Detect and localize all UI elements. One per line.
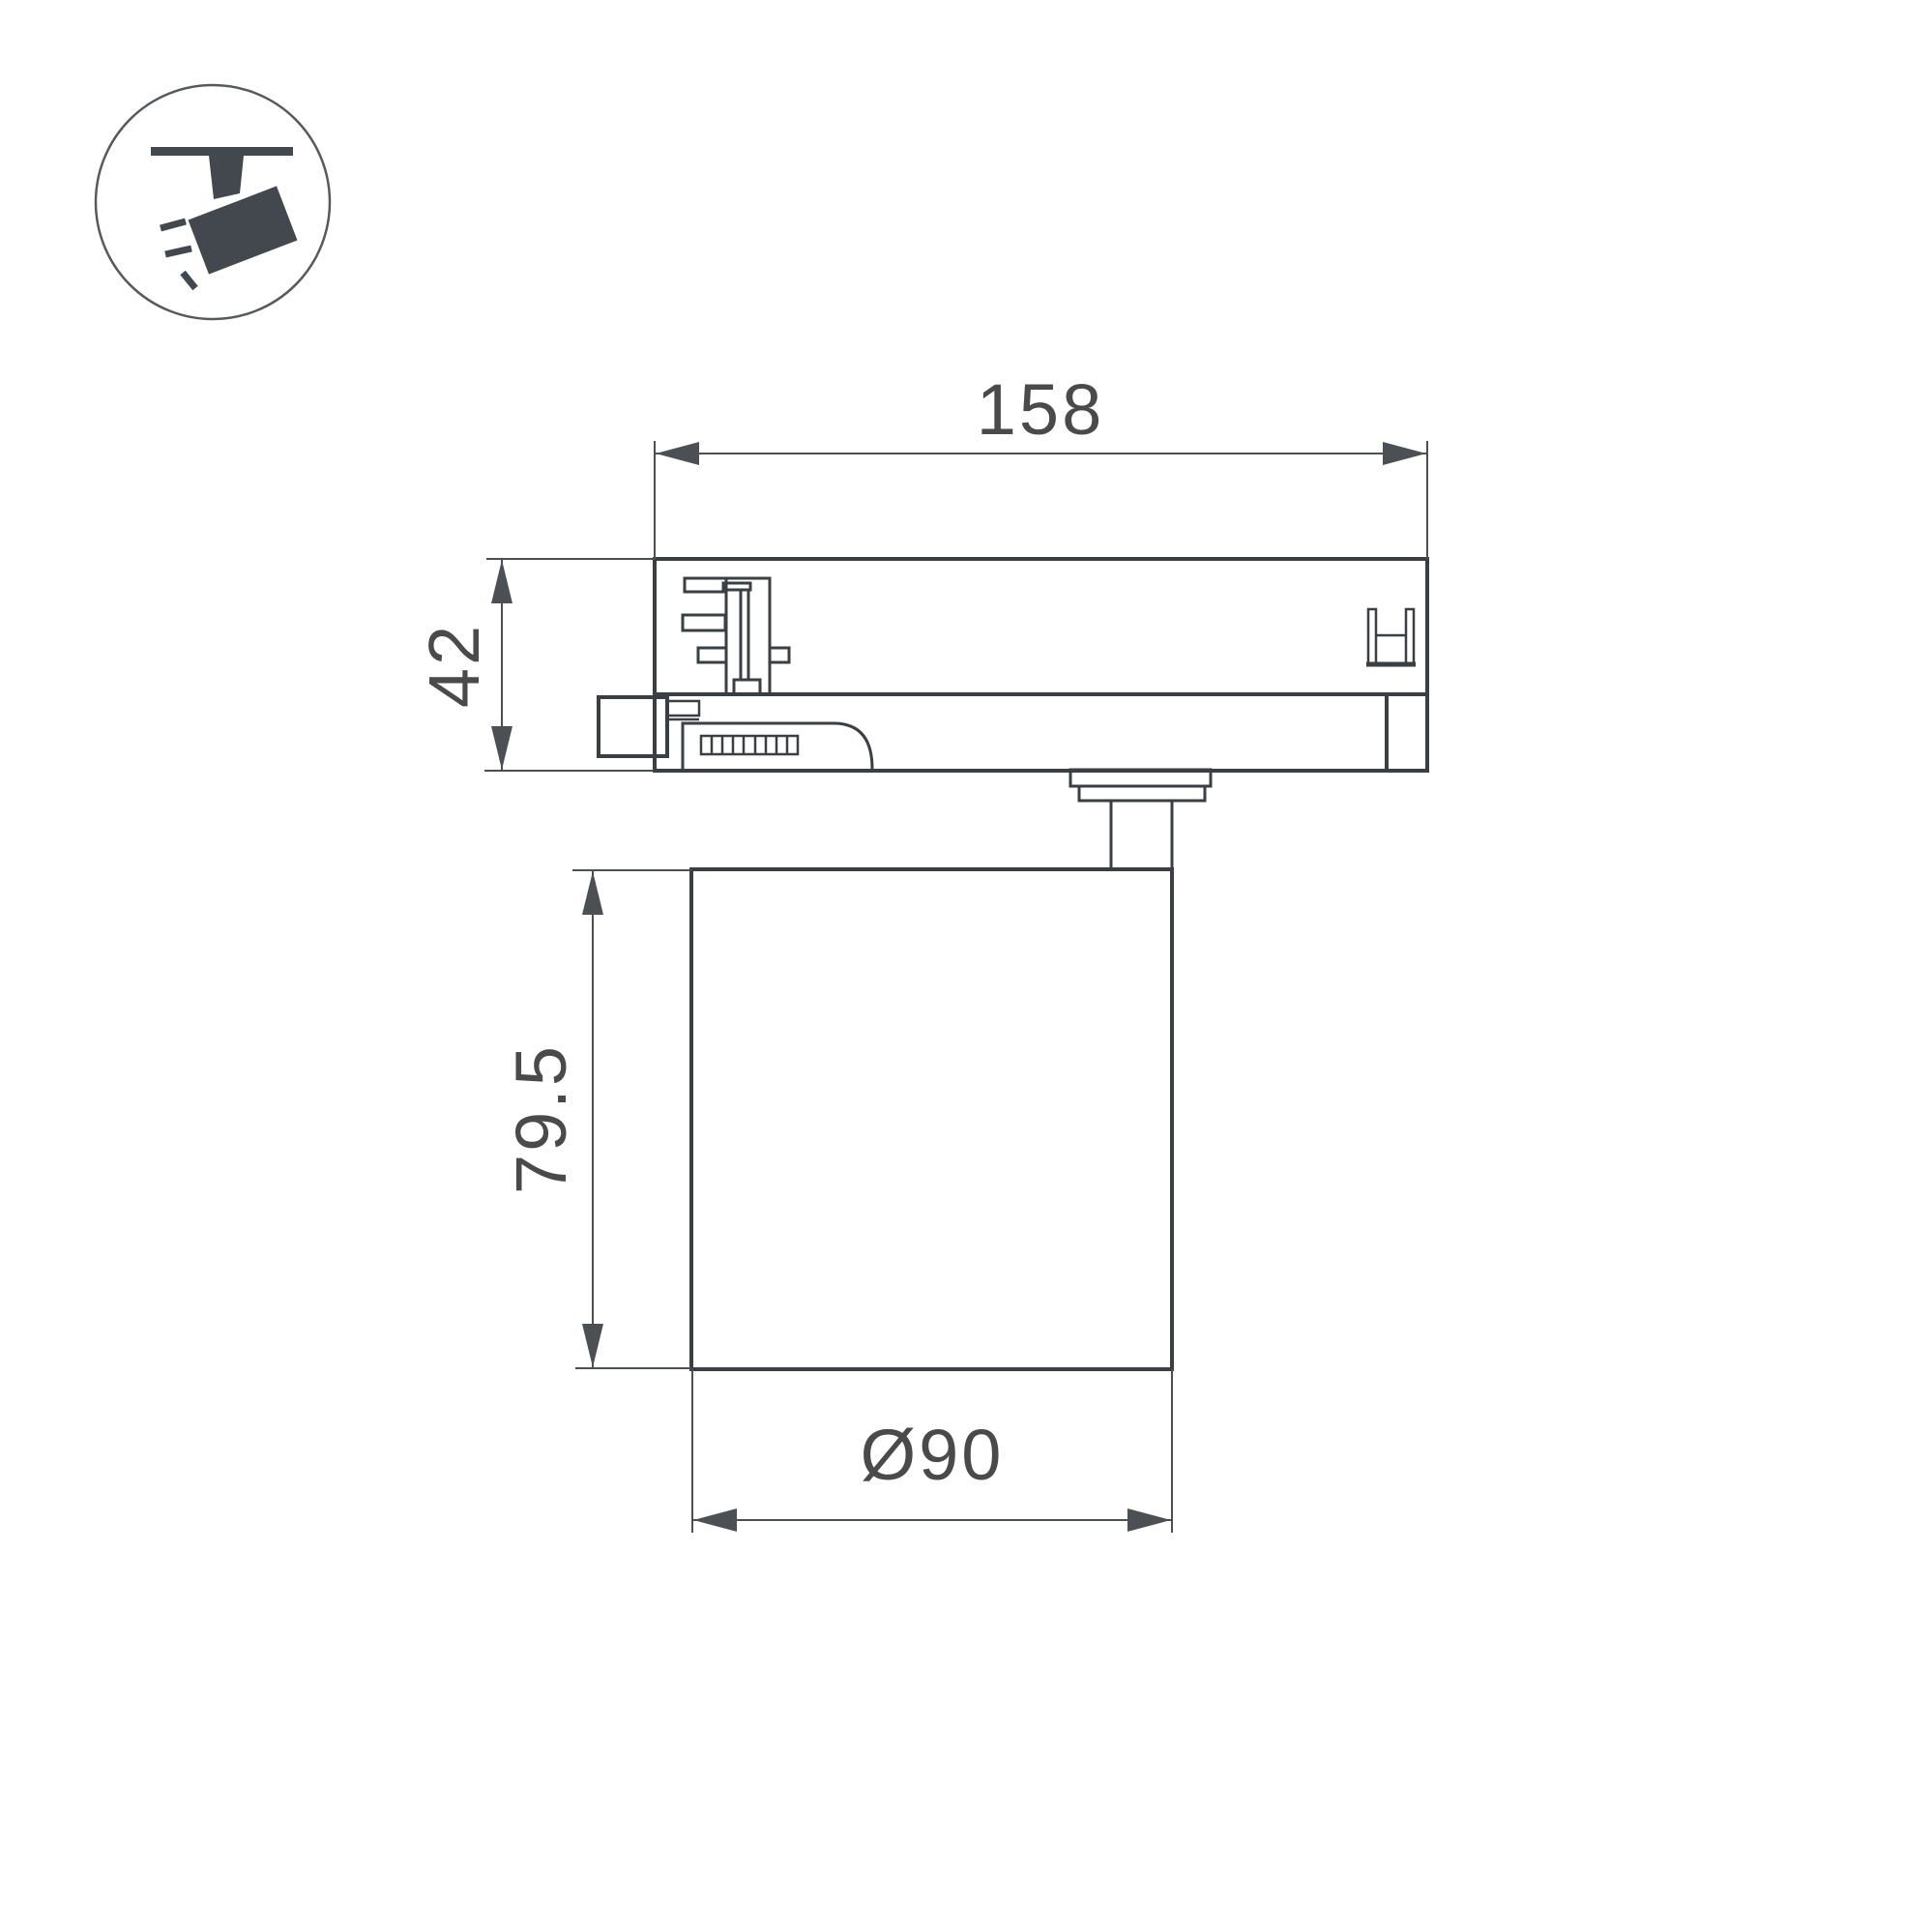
dimension-body-height [572, 870, 691, 1368]
selector-box [599, 697, 667, 756]
contact-prong-top [685, 578, 726, 592]
arrowhead-right [1127, 1508, 1171, 1532]
contact-prong-mid [683, 615, 725, 630]
ribbed-grip-frame [701, 736, 798, 754]
dim-label-body-height: 79.5 [506, 1043, 577, 1194]
dimension-adapter-height [484, 559, 655, 771]
drawing-canvas: 158 42 79.5 Ø90 [0, 0, 1932, 1932]
arrowhead-top [491, 560, 512, 603]
contact-prong-low [698, 648, 726, 662]
contact-foot [734, 680, 760, 694]
track-clip [1366, 609, 1416, 664]
clip-left-bar [1368, 609, 1376, 664]
icon-light-rays [161, 221, 195, 288]
dim-label-adapter-height: 42 [419, 623, 490, 708]
stem-flange-lower [1079, 786, 1205, 801]
icon-track-bar [151, 147, 293, 156]
mounting-stem [1070, 770, 1211, 869]
dim-label-adapter-width: 158 [977, 374, 1104, 446]
arrowhead-left [656, 442, 699, 465]
arrowhead-bottom [582, 1324, 603, 1367]
selector-latch [667, 701, 699, 716]
technical-drawing [0, 0, 1932, 1932]
dim-label-body-diameter: Ø90 [861, 1420, 1005, 1491]
lamp-cylinder [691, 869, 1172, 1369]
contact-assembly [683, 578, 789, 694]
contact-pin [741, 590, 748, 680]
icon-circle [96, 85, 330, 319]
contact-prong-right [770, 648, 789, 662]
arrowhead-left [693, 1508, 737, 1532]
arrowhead-top [582, 871, 603, 915]
arrowhead-right [1383, 442, 1426, 465]
icon-lamp-body [189, 186, 298, 274]
dimension-adapter-width [655, 441, 1427, 559]
gear-housing [683, 723, 872, 769]
clip-right-bar [1406, 609, 1414, 664]
ribbed-grip [701, 736, 798, 754]
icon-stem [209, 156, 244, 199]
track-light-icon [96, 85, 330, 319]
arrowhead-bottom [491, 726, 512, 770]
